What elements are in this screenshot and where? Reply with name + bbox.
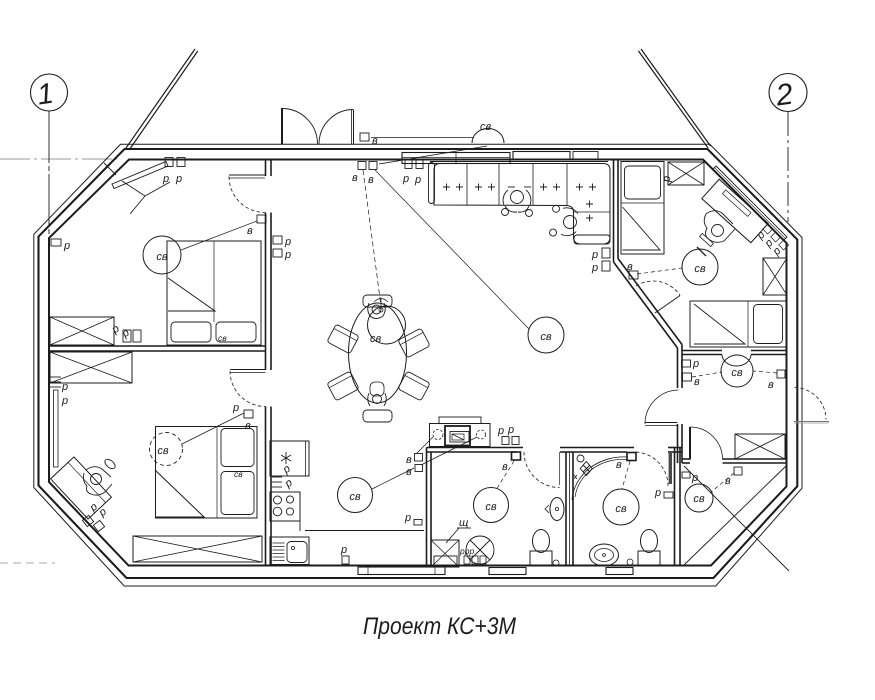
svg-text:в: в [245,420,251,432]
svg-text:р: р [61,381,68,393]
svg-text:в: в [725,475,731,487]
svg-text:в: в [368,174,374,186]
svg-text:р: р [591,262,598,274]
svg-text:св: св [615,503,627,515]
svg-text:в: в [247,225,253,237]
svg-text:Проект КС+3М: Проект КС+3М [363,613,516,640]
svg-text:в: в [502,461,508,473]
svg-text:р: р [591,249,598,261]
svg-text:р: р [232,402,239,414]
svg-text:р: р [691,472,698,484]
svg-text:св: св [218,333,227,343]
svg-text:в: в [627,261,633,273]
svg-text:св: св [485,501,497,513]
svg-text:св: св [234,469,243,479]
svg-text:р: р [340,544,347,556]
svg-text:р: р [497,425,504,437]
svg-text:ррр: ррр [459,546,474,556]
svg-text:р: р [661,176,673,183]
svg-text:в: в [768,379,774,391]
svg-text:р: р [692,358,699,370]
svg-text:св: св [540,331,552,343]
svg-text:р: р [402,173,409,185]
svg-text:р: р [284,249,291,261]
svg-text:щ: щ [459,517,468,529]
svg-text:св: св [480,121,492,133]
svg-text:в: в [694,376,700,388]
svg-text:св: св [694,263,706,275]
svg-text:св: св [156,251,168,263]
svg-text:р: р [284,236,291,248]
svg-text:св: св [731,367,743,379]
svg-text:св: св [349,491,361,503]
svg-text:р: р [507,424,514,436]
svg-text:р: р [414,174,421,186]
svg-text:р: р [654,487,661,499]
svg-text:р: р [175,173,182,185]
svg-text:в: в [406,454,412,466]
svg-text:в: в [616,459,622,471]
svg-text:св: св [157,445,169,457]
svg-text:р: р [162,173,169,185]
svg-text:в: в [352,172,358,184]
svg-text:в: в [406,466,412,478]
svg-text:р: р [404,512,411,524]
svg-text:в: в [372,135,378,147]
svg-text:р: р [63,240,70,252]
svg-text:р: р [61,395,68,407]
svg-text:св: св [693,493,705,505]
